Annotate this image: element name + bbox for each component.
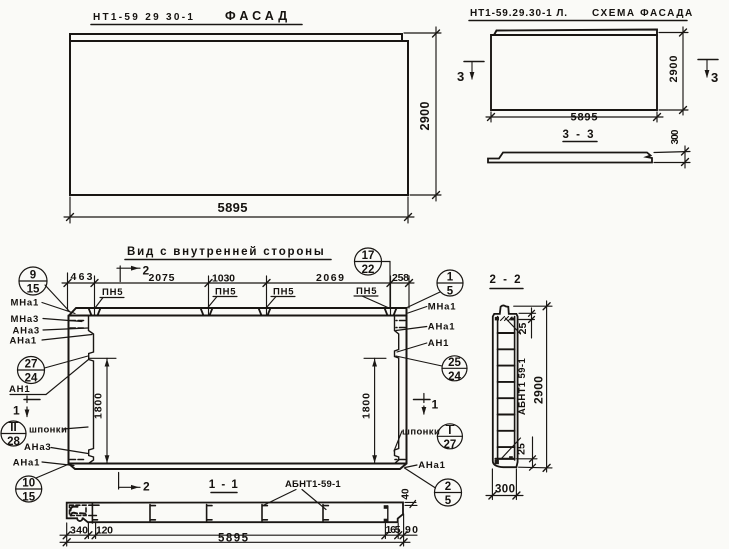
svg-text:3 - 3: 3 - 3 <box>562 129 595 141</box>
svg-text:АН1: АН1 <box>9 384 30 395</box>
svg-text:МНа3: МНа3 <box>11 314 40 325</box>
svg-text:АН1: АН1 <box>428 338 449 349</box>
svg-text:ПН5: ПН5 <box>273 287 294 298</box>
svg-text:1800: 1800 <box>93 393 105 419</box>
svg-text:2 - 2: 2 - 2 <box>489 274 522 286</box>
svg-text:10: 10 <box>22 478 35 490</box>
svg-text:2069: 2069 <box>316 272 344 284</box>
svg-text:I: I <box>448 425 451 437</box>
svg-text:СХЕМА ФАСАДА: СХЕМА ФАСАДА <box>592 8 694 19</box>
svg-text:258: 258 <box>392 272 409 284</box>
svg-text:5: 5 <box>445 495 452 507</box>
svg-text:463: 463 <box>71 271 93 283</box>
svg-text:1 - 1: 1 - 1 <box>209 479 240 491</box>
svg-text:2900: 2900 <box>532 376 546 404</box>
svg-text:МНа1: МНа1 <box>11 298 40 309</box>
svg-text:340: 340 <box>70 525 88 537</box>
svg-text:1800: 1800 <box>361 393 373 419</box>
svg-text:АБНТ1-59-1: АБНТ1-59-1 <box>285 479 341 490</box>
svg-text:АНа1: АНа1 <box>13 458 41 469</box>
svg-text:2: 2 <box>445 481 451 493</box>
svg-text:МНа1: МНа1 <box>428 302 457 313</box>
svg-text:300: 300 <box>495 484 515 496</box>
svg-text:28: 28 <box>7 436 20 448</box>
svg-text:90: 90 <box>405 524 418 536</box>
svg-text:АБНТ1 59-1: АБНТ1 59-1 <box>517 358 528 416</box>
svg-text:ПН5: ПН5 <box>356 286 377 297</box>
svg-text:22: 22 <box>362 264 375 276</box>
svg-text:НТ1-59.29.30-1 Л.: НТ1-59.29.30-1 Л. <box>470 8 568 19</box>
svg-text:27: 27 <box>444 439 457 451</box>
svg-text:Вид с внутренней стороны: Вид с внутренней стороны <box>127 246 326 258</box>
svg-text:АНа1: АНа1 <box>418 460 446 471</box>
svg-text:17: 17 <box>362 250 375 262</box>
svg-text:1030: 1030 <box>212 273 235 285</box>
svg-text:15: 15 <box>22 492 35 504</box>
svg-text:24: 24 <box>448 371 461 383</box>
svg-text:15: 15 <box>27 284 40 296</box>
svg-text:2075: 2075 <box>149 272 175 284</box>
svg-text:НТ1-59 29 30-1: НТ1-59 29 30-1 <box>93 12 195 23</box>
svg-text:25: 25 <box>516 443 528 455</box>
svg-text:шпонки: шпонки <box>29 425 67 436</box>
svg-text:II: II <box>10 422 16 434</box>
svg-text:1: 1 <box>432 398 439 412</box>
svg-text:40: 40 <box>401 488 412 500</box>
svg-text:9: 9 <box>30 270 36 282</box>
svg-text:5895: 5895 <box>218 533 249 545</box>
svg-text:ПН5: ПН5 <box>102 287 123 298</box>
svg-text:5895: 5895 <box>571 112 598 124</box>
svg-text:5: 5 <box>447 286 454 298</box>
svg-text:24: 24 <box>25 373 38 385</box>
svg-text:2900: 2900 <box>418 101 432 130</box>
svg-text:АНа1: АНа1 <box>428 322 456 333</box>
svg-text:2: 2 <box>143 480 150 494</box>
svg-text:АНа3: АНа3 <box>24 442 52 453</box>
svg-text:120: 120 <box>96 525 113 537</box>
svg-text:165: 165 <box>386 524 401 536</box>
svg-text:ПН5: ПН5 <box>215 287 236 298</box>
svg-text:АНа1: АНа1 <box>10 336 38 347</box>
svg-text:2900: 2900 <box>668 56 680 83</box>
svg-text:2: 2 <box>143 264 150 278</box>
svg-text:1: 1 <box>13 404 20 418</box>
svg-text:300: 300 <box>670 129 681 144</box>
svg-text:27: 27 <box>25 359 38 371</box>
svg-text:25: 25 <box>517 323 529 335</box>
svg-text:3: 3 <box>711 70 718 85</box>
svg-text:25: 25 <box>448 357 461 369</box>
svg-text:5895: 5895 <box>218 200 248 215</box>
svg-text:1: 1 <box>447 272 454 284</box>
svg-text:3: 3 <box>457 69 464 84</box>
svg-text:шпонки: шпонки <box>402 427 440 438</box>
svg-text:ФАСАД: ФАСАД <box>225 9 291 23</box>
